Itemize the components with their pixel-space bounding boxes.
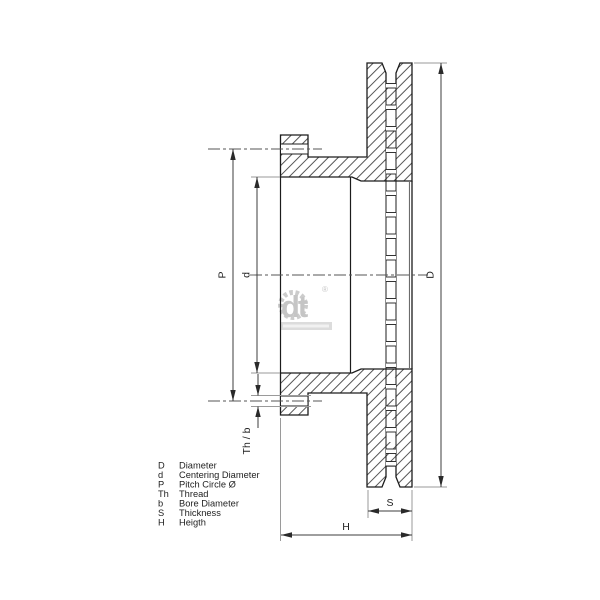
vent-vane-tick <box>386 277 396 282</box>
vent-vane-tick <box>386 213 396 218</box>
dt-logo-registered-mark: ® <box>322 285 328 294</box>
dim-label-H: H <box>342 521 350 533</box>
arrow-H-left <box>281 532 292 537</box>
vent-vane-tick <box>386 256 396 261</box>
arrow-D-top <box>438 63 443 74</box>
dt-logo-text: dt <box>281 289 308 324</box>
arrow-P-bottom <box>230 390 235 401</box>
arrow-d-top <box>254 177 259 188</box>
vent-vane-tick <box>386 105 396 110</box>
dim-label-thb: Th / b <box>241 427 253 454</box>
vent-vane-tick <box>386 127 396 132</box>
arrow-D-bottom <box>438 476 443 487</box>
vent-vane-tick <box>386 191 396 196</box>
vent-vane-tick <box>386 234 396 239</box>
arrow-thb-top <box>255 385 260 396</box>
brake-disc-technical-drawing: dt ® <box>0 0 600 600</box>
vent-vane-tick <box>386 428 396 433</box>
legend-key: H <box>158 518 165 528</box>
legend: DDiameterdCentering DiameterPPitch Circl… <box>158 461 260 528</box>
vent-vane-tick <box>386 385 396 390</box>
vent-vane-tick <box>386 148 396 153</box>
legend-key: D <box>158 461 165 471</box>
arrow-d-bottom <box>254 362 259 373</box>
dim-label-D: D <box>425 271 437 279</box>
arrow-S-right <box>401 508 412 513</box>
arrow-S-left <box>368 508 379 513</box>
vent-vane-tick <box>386 449 396 454</box>
vent-vane-tick <box>386 320 396 325</box>
dt-logo-watermark: dt ® <box>280 285 332 330</box>
arrow-thb-bottom <box>255 407 260 418</box>
vent-vane-tick <box>386 170 396 175</box>
legend-label: Heigth <box>179 518 206 528</box>
vent-vane-tick <box>386 342 396 347</box>
legend-label: Diameter <box>179 461 217 471</box>
legend-key: b <box>158 499 163 509</box>
legend-label: Pitch Circle Ø <box>179 480 236 490</box>
dim-label-S: S <box>386 497 393 509</box>
legend-label: Thickness <box>179 508 221 518</box>
vent-vane-tick <box>386 363 396 368</box>
vent-vane-tick <box>386 462 396 467</box>
arrow-H-right <box>401 532 412 537</box>
vent-slots <box>387 106 396 442</box>
legend-label: Thread <box>179 489 208 499</box>
vent-vane-tick <box>386 84 396 89</box>
legend-key: P <box>158 480 164 490</box>
arrow-P-top <box>230 149 235 160</box>
legend-key: S <box>158 508 164 518</box>
drawing-svg: dt ® <box>0 0 600 600</box>
dim-label-P: P <box>217 271 229 278</box>
vent-vane-tick <box>386 299 396 304</box>
legend-key: d <box>158 470 163 480</box>
legend-key: Th <box>158 489 169 499</box>
dim-label-d: d <box>241 272 253 278</box>
vent-vane-tick <box>386 406 396 411</box>
dt-logo-tagline-inner <box>283 325 329 328</box>
legend-label: Bore Diameter <box>179 499 239 509</box>
legend-label: Centering Diameter <box>179 470 260 480</box>
